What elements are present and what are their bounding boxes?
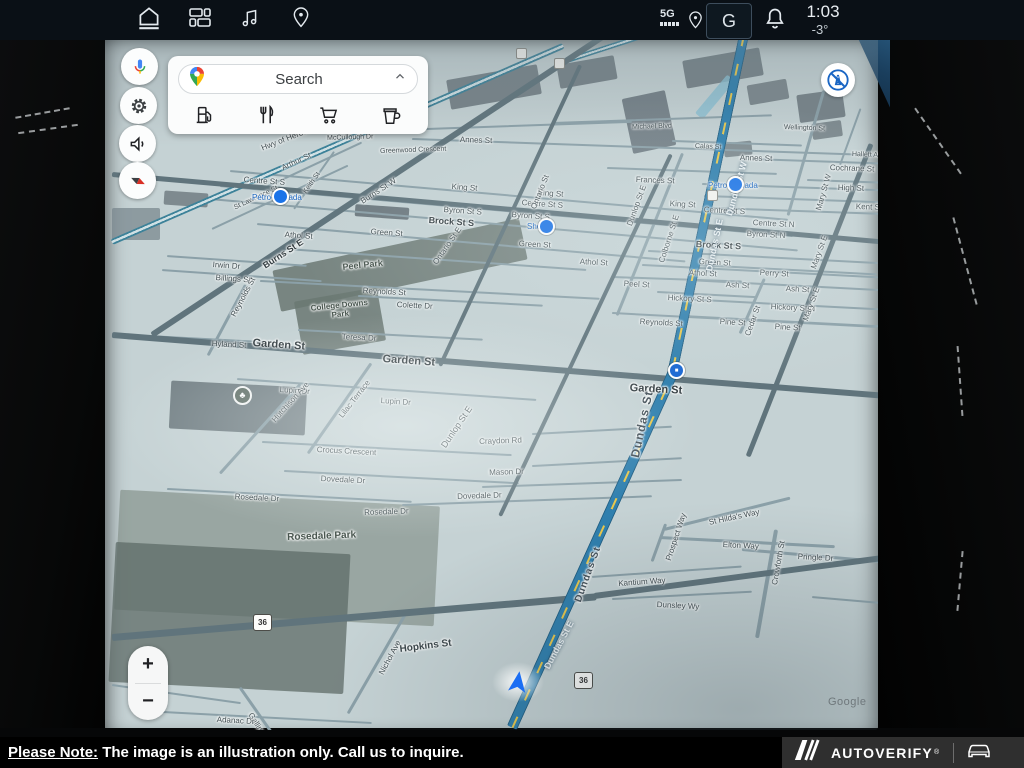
map-marker-badge: 36 — [574, 672, 593, 689]
street-label: Greenwood Crescent — [380, 146, 446, 155]
shopping-category-button[interactable] — [298, 100, 360, 130]
dashboard-leather-right — [878, 40, 1024, 737]
lower-bezel — [0, 728, 1024, 737]
street-label: High St — [838, 183, 865, 193]
map-marker-poi[interactable] — [272, 188, 289, 205]
street-label: Hickory St S — [668, 293, 712, 304]
street-label: Garden St — [252, 337, 305, 353]
road — [347, 613, 407, 714]
street-label: King St — [670, 199, 696, 209]
road — [812, 596, 878, 607]
chevron-up-icon[interactable] — [393, 70, 407, 89]
map-area — [747, 79, 790, 106]
zoom-out-button[interactable]: − — [128, 684, 168, 721]
street-label: Pringle Dr — [798, 552, 834, 563]
avoid-highways-button[interactable] — [821, 63, 855, 97]
road — [162, 711, 372, 724]
street-label: Google — [828, 696, 866, 708]
compass-needle-icon — [124, 167, 151, 194]
road — [284, 470, 519, 484]
restaurant-category-button[interactable] — [236, 100, 298, 130]
map-canvas[interactable]: Hwy of HeroesMcCullough DrGreenwood Cres… — [112, 36, 878, 730]
dashboard-leather-left — [0, 40, 112, 737]
home-button[interactable] — [136, 5, 162, 31]
map-marker-transit[interactable]: ■ — [668, 362, 685, 379]
location-pin-icon — [291, 6, 311, 30]
temperature: -3° — [794, 22, 846, 37]
account-button[interactable]: G — [706, 3, 752, 39]
search-panel: Search — [168, 56, 428, 134]
registered-mark: ® — [934, 749, 939, 756]
coffee-category-button[interactable] — [360, 100, 422, 130]
street-label: Athol St — [580, 257, 608, 267]
street-label: Hallett Ave — [852, 151, 878, 159]
disclaimer-bar: Please Note: The image is an illustratio… — [0, 737, 1024, 768]
autoverify-logo-icon — [794, 739, 824, 766]
street-label: Hopkins St — [399, 638, 452, 655]
zoom-controls: + − — [128, 646, 168, 720]
street-label: Craydon Rd — [479, 436, 522, 446]
speaker-icon — [128, 134, 148, 154]
map-marker-parkdot: ♣ — [233, 386, 252, 405]
street-label: Colette Dr — [397, 300, 433, 311]
notifications-button[interactable] — [762, 6, 788, 32]
street-label: Elton Way — [723, 540, 760, 551]
street-label: Byron St S — [443, 205, 482, 217]
street-label: Byron St N — [747, 229, 786, 240]
street-label: Garden St — [382, 353, 435, 369]
app-grid-icon — [188, 6, 212, 30]
street-label: Annes St — [460, 135, 493, 145]
road — [307, 363, 373, 455]
disclaimer-text: Please Note: The image is an illustratio… — [0, 744, 464, 761]
street-label: Adanac Dr — [217, 715, 255, 726]
street-label: Calas St — [695, 143, 722, 151]
bell-icon — [763, 6, 787, 32]
street-label: Arthur St — [280, 151, 312, 173]
street-label: Peel St — [624, 279, 650, 289]
street-label: Rosedale Dr — [364, 506, 409, 517]
street-label: Lupin Dr — [380, 396, 411, 407]
home-icon — [136, 4, 162, 32]
street-label: Perry St — [760, 268, 789, 279]
street-label: Mason Dr — [489, 467, 524, 477]
compass-button[interactable] — [119, 162, 156, 199]
street-label: Michael Blvd — [632, 123, 672, 131]
map-marker-poi[interactable] — [727, 176, 744, 193]
music-note-icon — [240, 7, 262, 29]
brand-name: AUTOVERIFY — [831, 745, 933, 761]
status-bar: 5G G 1:03 -3° — [0, 0, 1024, 40]
street-label: Hyland St — [212, 339, 247, 350]
street-label: Dunlop St E — [439, 404, 474, 449]
road — [358, 295, 543, 307]
street-label: Dunsley Wy — [657, 600, 700, 611]
street-label: Wellington St — [784, 124, 825, 132]
street-label: Kent St — [856, 202, 878, 212]
no-highway-icon — [826, 68, 850, 92]
street-label: Reynolds St — [640, 317, 684, 328]
street-label: Green St — [519, 239, 551, 250]
navigation-button[interactable] — [288, 5, 314, 31]
category-row — [174, 100, 422, 130]
street-label: Pine St — [775, 322, 801, 332]
infotainment-screenshot: { "status_bar": { "icons_left": ["home",… — [0, 0, 1024, 768]
road — [262, 441, 512, 456]
street-label: Pine St — [720, 317, 746, 327]
search-placeholder: Search — [205, 71, 393, 88]
google-maps-pin-icon — [189, 66, 205, 92]
settings-button[interactable] — [120, 87, 157, 124]
street-label: Crocus Crescent — [317, 445, 377, 457]
street-label: Irwin Dr — [212, 260, 240, 271]
street-label: Ash St — [726, 280, 750, 290]
search-input[interactable]: Search — [178, 64, 418, 94]
street-label: McCullough Dr — [327, 133, 374, 142]
road — [532, 457, 682, 467]
brand-panel: AUTOVERIFY ® — [782, 737, 1024, 768]
street-label: Centre St N — [753, 218, 795, 229]
media-button[interactable] — [238, 5, 264, 31]
road — [687, 279, 878, 291]
mic-icon — [130, 57, 150, 77]
signal-bars-icon — [660, 22, 679, 26]
voice-assistant-button[interactable] — [121, 48, 158, 85]
street-label: Dovedale Dr — [457, 490, 502, 501]
map-marker-tiny — [554, 58, 565, 69]
gear-icon — [129, 96, 149, 116]
disclaimer-label: Please Note: — [8, 744, 98, 761]
map-marker-tiny — [516, 48, 527, 59]
street-label: Brock St S — [428, 215, 474, 228]
street-label: Dovedale Dr — [321, 474, 366, 485]
map-marker-badge: 36 — [253, 614, 272, 631]
street-label: Teresa Dr — [342, 332, 377, 343]
street-label: King St — [451, 182, 477, 193]
road — [607, 167, 777, 175]
street-label: Cochrane St — [830, 163, 875, 174]
network-indicator: 5G — [660, 8, 675, 20]
street-label: Green St — [370, 227, 403, 238]
gps-pin-icon — [682, 7, 708, 33]
clock: 1:03 — [794, 2, 852, 21]
fuel-category-button[interactable] — [174, 100, 236, 130]
street-label: Garden St — [629, 382, 682, 397]
disclaimer-body: The image is an illustration only. Call … — [98, 744, 464, 761]
volume-button[interactable] — [119, 125, 156, 162]
current-location-indicator — [492, 662, 544, 702]
apps-button[interactable] — [187, 5, 213, 31]
navigation-arrow-icon — [503, 667, 532, 696]
touchscreen: Hwy of HeroesMcCullough DrGreenwood Cres… — [105, 36, 878, 730]
car-icon — [966, 742, 992, 764]
street-label: Ash St — [786, 284, 810, 294]
brand-divider — [953, 743, 954, 763]
map-marker-tiny — [707, 190, 718, 201]
zoom-in-button[interactable]: + — [128, 646, 168, 683]
map-marker-poi[interactable] — [538, 218, 555, 235]
